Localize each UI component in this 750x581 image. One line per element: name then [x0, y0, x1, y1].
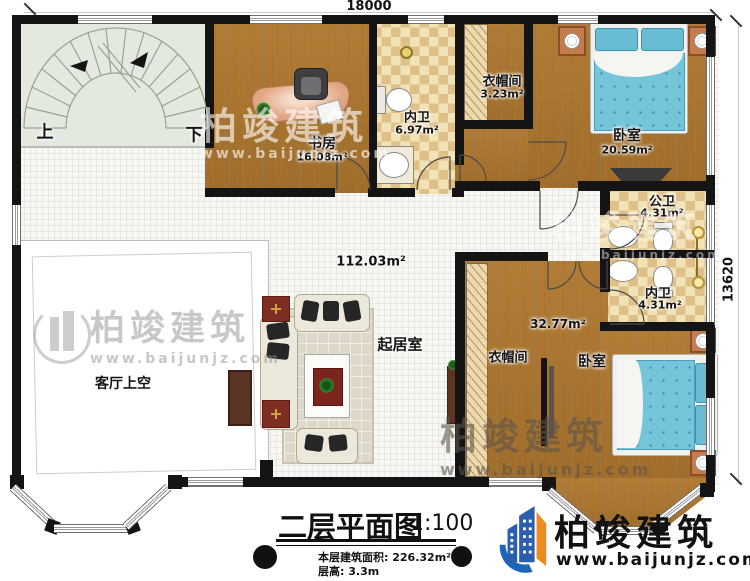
pillow: [641, 28, 684, 51]
hall-floor: [455, 124, 528, 186]
sink-icon: [379, 152, 409, 178]
floor-area-value: 226.32m²: [392, 551, 451, 564]
window: [706, 205, 715, 325]
title-underline: [276, 539, 456, 542]
plant-icon: [319, 378, 334, 393]
window: [408, 15, 444, 24]
room-area-living: 112.03m²: [336, 255, 405, 270]
bed-sheet: [617, 360, 643, 448]
dimension-tick-icon: [730, 15, 743, 28]
watermark-building-icon: [33, 306, 91, 364]
room-area-closet-top: 3.23m²: [480, 88, 523, 101]
room-area-bath-top: 6.97m²: [395, 124, 438, 137]
room-area-suite: 32.77m²: [530, 317, 586, 331]
pillow: [595, 28, 638, 51]
sofa: [296, 428, 358, 464]
window: [12, 205, 21, 245]
room-label-suite-closet: 衣帽间: [488, 347, 527, 366]
tv-cabinet: [228, 370, 252, 426]
window: [706, 398, 715, 455]
floor-height-value: 3.3m: [348, 565, 379, 578]
suite-wardrobe: [466, 263, 488, 477]
plant-icon: [256, 102, 271, 117]
room-label-suite-bedroom: 卧室: [578, 351, 606, 371]
sink-icon: [608, 226, 638, 248]
toilet-tank: [376, 86, 386, 114]
floor-height-note: 层高: 3.3m: [318, 563, 379, 579]
toilet-tank: [653, 222, 673, 229]
room-label-bedroom-top: 卧室: [613, 125, 641, 145]
dimension-top: 18000: [343, 0, 395, 14]
tv-partition: [541, 358, 547, 446]
stair-edge-line: [16, 146, 210, 148]
brand-website: www.baijunjz.com: [556, 550, 750, 570]
window: [558, 15, 598, 24]
brand-building-icon: [494, 502, 552, 576]
side-table: [262, 296, 290, 322]
window: [489, 477, 542, 487]
sofa: [294, 294, 370, 332]
lamp-icon: [564, 33, 580, 49]
side-table: [262, 400, 290, 428]
floor-plan-canvas: 18000 13620: [0, 0, 750, 581]
window: [78, 15, 152, 24]
room-label-living: 起居室: [377, 334, 422, 355]
wall-hook-icon: [400, 46, 413, 59]
stairs-down-label: 下: [186, 121, 203, 146]
desk-chair: [294, 68, 328, 100]
towel-knob-icon: [692, 276, 705, 289]
bed: [612, 354, 718, 456]
plan-scale: 1:100: [410, 511, 473, 536]
towel-knob-icon: [692, 226, 705, 239]
title-underline-thin: [276, 545, 456, 546]
nightstand: [558, 26, 586, 56]
stairs-up-label: 上: [37, 118, 54, 143]
window: [250, 15, 322, 24]
bed: [590, 22, 688, 134]
floor-height-label: 层高:: [318, 565, 344, 578]
brand-logo: 柏竣建筑 www.baijunjz.com: [492, 500, 748, 578]
dimension-tick-icon: [24, 3, 37, 16]
dimension-line: [738, 22, 739, 484]
tv-screen: [549, 366, 554, 438]
coffee-table: [304, 354, 350, 418]
sink-icon: [608, 260, 638, 282]
title-dot-icon: [253, 545, 277, 569]
brand-name: 柏竣建筑: [554, 504, 718, 556]
bay-window: [54, 524, 132, 533]
room-area-bedroom-top: 20.59m²: [601, 144, 652, 157]
title-dot-icon: [451, 546, 472, 567]
window: [188, 477, 243, 487]
void-label: 客厅上空: [95, 373, 151, 393]
dimension-right: 13620: [722, 250, 737, 310]
dimension-tick-icon: [730, 473, 743, 486]
room-area-bath-public: 4.31m²: [640, 207, 683, 220]
room-area-bath-private: 4.31m²: [638, 299, 681, 312]
window: [706, 57, 715, 175]
room-area-study: 16.08m²: [296, 151, 347, 164]
